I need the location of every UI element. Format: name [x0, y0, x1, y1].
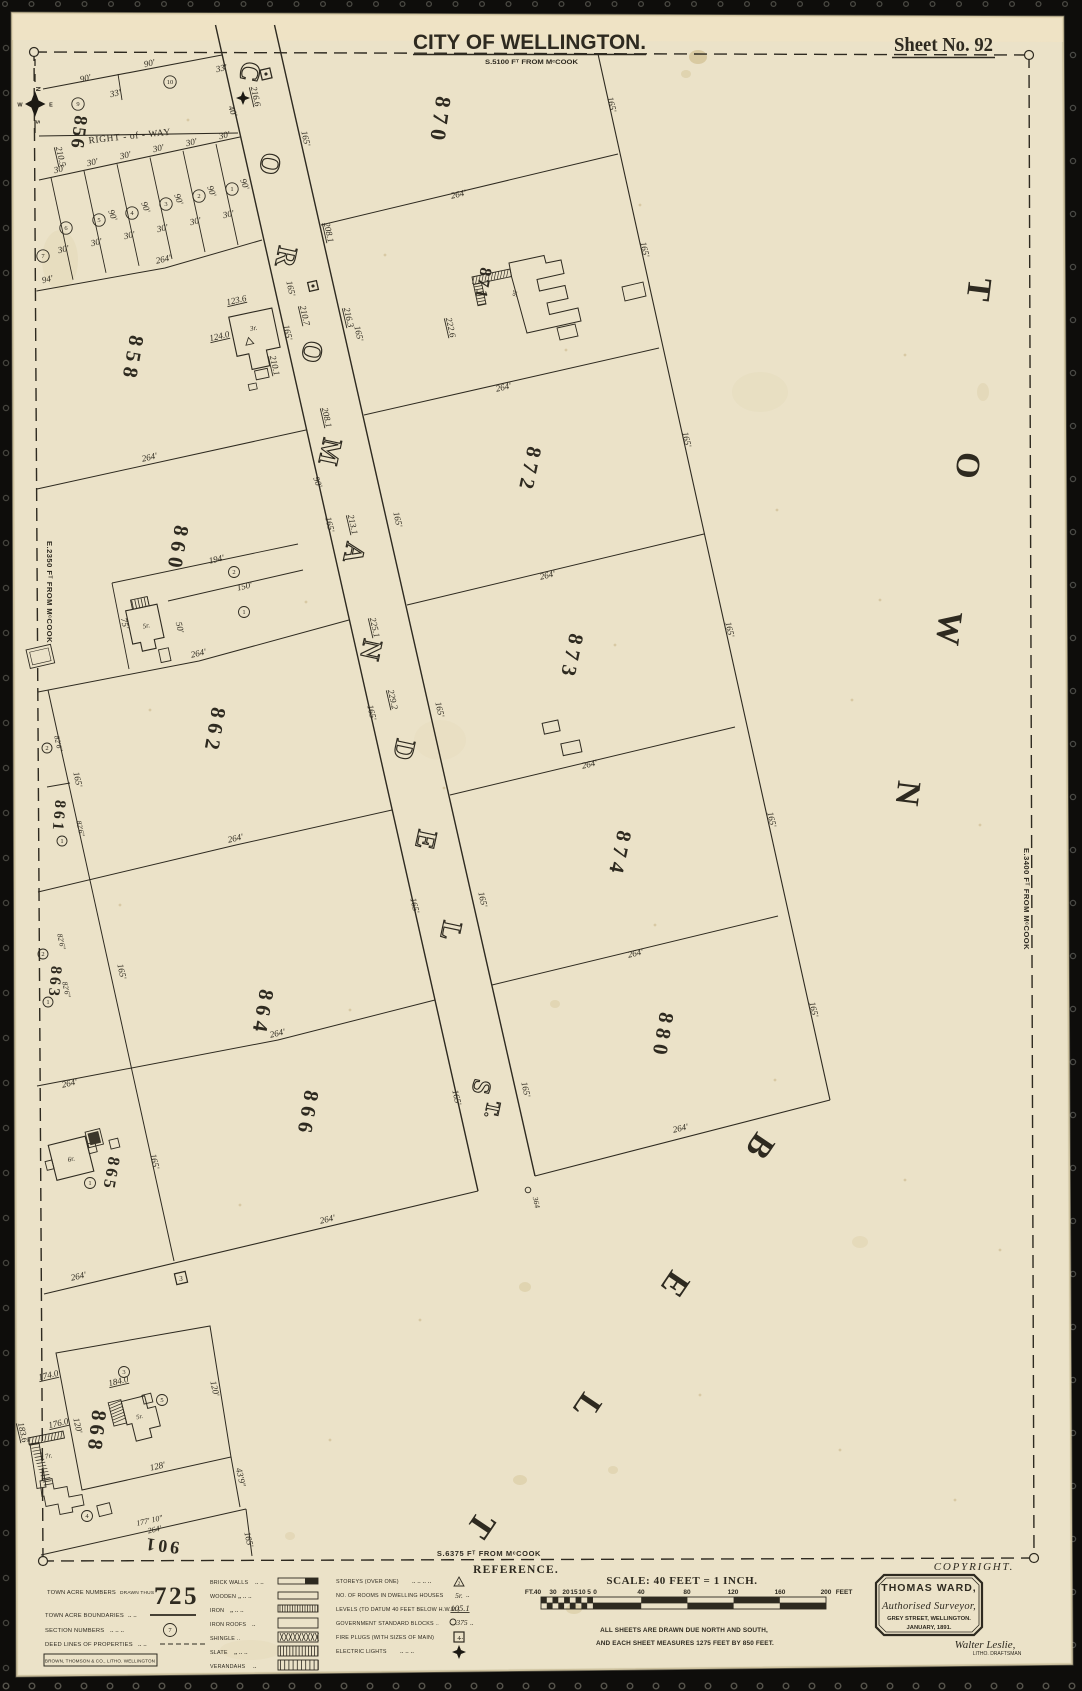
- svg-text:TOWN ACRE BOUNDARIES: TOWN ACRE BOUNDARIES: [45, 1613, 124, 1619]
- svg-text:..: ..: [466, 1591, 470, 1599]
- svg-text:5r.: 5r.: [455, 1591, 463, 1600]
- svg-text:ELECTRIC LIGHTS: ELECTRIC LIGHTS: [336, 1649, 387, 1655]
- svg-text:S.5100 Fᵀ FROM MᶜCOOK: S.5100 Fᵀ FROM MᶜCOOK: [485, 59, 579, 66]
- svg-text:T: T: [959, 276, 999, 303]
- svg-text:.. ..: .. ..: [255, 1578, 264, 1586]
- svg-text:W: W: [17, 103, 23, 109]
- svg-text:BRICK WALLS: BRICK WALLS: [210, 1580, 248, 1586]
- svg-text:Authorised Surveyor,: Authorised Surveyor,: [881, 1601, 976, 1612]
- svg-text:.. .. ..: .. .. ..: [400, 1647, 414, 1655]
- svg-text:.. .. ..: .. .. ..: [110, 1626, 124, 1634]
- svg-text:IRON ROOFS: IRON ROOFS: [210, 1622, 246, 1628]
- svg-text:E.2350 Fᵀ FROM MᶜCOOK: E.2350 Fᵀ FROM MᶜCOOK: [45, 541, 54, 643]
- svg-text:2: 2: [197, 193, 200, 200]
- svg-text:„ .. ..: „ .. ..: [230, 1606, 244, 1614]
- svg-text:O: O: [947, 450, 987, 481]
- svg-text:.. ..: .. ..: [128, 1611, 137, 1619]
- svg-text:„ .. ..: „ .. ..: [234, 1648, 248, 1656]
- svg-text:2: 2: [458, 1581, 461, 1587]
- svg-text:CITY OF WELLINGTON.: CITY OF WELLINGTON.: [413, 31, 646, 54]
- svg-text:..: ..: [253, 1662, 257, 1670]
- svg-text:2: 2: [41, 951, 44, 958]
- svg-text:200: 200: [821, 1589, 832, 1596]
- svg-text:15: 15: [570, 1589, 578, 1596]
- svg-text:.. .. ..: .. .. .. ..: [412, 1577, 432, 1585]
- svg-text:N: N: [888, 779, 928, 808]
- svg-text:856: 856: [66, 114, 91, 151]
- svg-text:1: 1: [230, 186, 233, 193]
- svg-text:TOWN ACRE NUMBERS: TOWN ACRE NUMBERS: [47, 1590, 116, 1596]
- svg-text:861: 861: [49, 799, 69, 833]
- svg-text:LEVELS (TO DATUM 40 FEET BELOW: LEVELS (TO DATUM 40 FEET BELOW H.W.M.): [336, 1607, 460, 1613]
- svg-text:..: ..: [252, 1620, 256, 1628]
- svg-text:1: 1: [242, 609, 245, 616]
- svg-text:80: 80: [683, 1589, 691, 1596]
- svg-text:40: 40: [637, 1589, 645, 1596]
- svg-text:10: 10: [578, 1589, 586, 1596]
- svg-text:3: 3: [164, 201, 167, 208]
- svg-text:SECTION NUMBERS: SECTION NUMBERS: [45, 1628, 104, 1634]
- svg-text:3: 3: [122, 1369, 125, 1376]
- svg-text:5: 5: [97, 217, 100, 224]
- svg-text:2: 2: [45, 745, 48, 752]
- svg-text:DEED LINES OF PROPERTIES: DEED LINES OF PROPERTIES: [45, 1642, 133, 1648]
- svg-text:..: ..: [470, 1619, 474, 1627]
- svg-text:9: 9: [76, 101, 79, 108]
- svg-text:3: 3: [179, 1275, 183, 1283]
- svg-text:FEET: FEET: [836, 1589, 853, 1596]
- svg-text:1: 1: [60, 838, 63, 845]
- svg-text:10: 10: [167, 79, 174, 86]
- svg-text:DRAWN THUS: DRAWN THUS: [120, 1590, 154, 1596]
- svg-text:E.3400 Fᵀ FROM MᶜCOOK: E.3400 Fᵀ FROM MᶜCOOK: [1022, 848, 1031, 950]
- svg-text:NO. OF ROOMS IN DWELLING HOUSE: NO. OF ROOMS IN DWELLING HOUSES: [336, 1593, 444, 1599]
- svg-text:375: 375: [455, 1618, 468, 1627]
- svg-text:JANUARY, 1891.: JANUARY, 1891.: [907, 1625, 952, 1631]
- svg-text:FIRE PLUGS (WITH SIZES OF MAIN: FIRE PLUGS (WITH SIZES OF MAIN): [336, 1635, 434, 1641]
- svg-text:SHINGLE ..: SHINGLE ..: [210, 1636, 240, 1642]
- svg-text:160: 160: [775, 1589, 786, 1596]
- svg-text:2: 2: [232, 569, 235, 576]
- svg-text:LITHO. DRAFTSMAN: LITHO. DRAFTSMAN: [973, 1651, 1022, 1657]
- svg-text:COPYRIGHT.: COPYRIGHT.: [934, 1561, 1014, 1573]
- svg-text:26: 26: [511, 290, 518, 297]
- svg-text:S.6375 Fᵀ FROM MᶜCOOK: S.6375 Fᵀ FROM MᶜCOOK: [437, 1549, 541, 1558]
- svg-text:STOREYS (OVER ONE): STOREYS (OVER ONE): [336, 1579, 399, 1585]
- svg-text:GREY STREET, WELLINGTON.: GREY STREET, WELLINGTON.: [887, 1616, 971, 1622]
- svg-text:W: W: [928, 609, 969, 647]
- svg-text:AND EACH SHEET MEASURES 1275 F: AND EACH SHEET MEASURES 1275 FEET BY 850…: [596, 1640, 774, 1647]
- svg-text:SLATE: SLATE: [210, 1650, 228, 1656]
- svg-text:Sheet No. 92: Sheet No. 92: [894, 34, 993, 56]
- svg-text:„ .. ..: „ .. ..: [238, 1592, 252, 1600]
- svg-text:FT.40: FT.40: [525, 1589, 542, 1596]
- svg-text:IRON: IRON: [210, 1608, 224, 1614]
- svg-text:S: S: [34, 120, 40, 124]
- svg-text:E: E: [49, 103, 53, 109]
- svg-text:120: 120: [728, 1589, 739, 1596]
- svg-text:1: 1: [46, 999, 49, 1006]
- svg-text:SCALE: 40 FEET = 1 INCH.: SCALE: 40 FEET = 1 INCH.: [606, 1575, 757, 1587]
- svg-text:BROWN, THOMSON & CO., LITHO. W: BROWN, THOMSON & CO., LITHO. WELLINGTON: [45, 1659, 155, 1664]
- svg-text:THOMAS WARD,: THOMAS WARD,: [881, 1582, 976, 1594]
- svg-text:30: 30: [549, 1589, 557, 1596]
- svg-text:725: 725: [154, 1583, 199, 1610]
- svg-text:5: 5: [160, 1397, 163, 1404]
- svg-text:105.1: 105.1: [450, 1603, 469, 1613]
- svg-text:.. ..: .. ..: [138, 1640, 147, 1648]
- svg-text:WOODEN: WOODEN: [210, 1594, 236, 1600]
- svg-text:0: 0: [593, 1589, 597, 1596]
- svg-text:GOVERNMENT STANDARD BLOCKS ..: GOVERNMENT STANDARD BLOCKS ..: [336, 1621, 439, 1627]
- svg-text:5: 5: [587, 1589, 591, 1596]
- svg-text:REFERENCE.: REFERENCE.: [473, 1564, 559, 1576]
- svg-text:20: 20: [562, 1589, 570, 1596]
- svg-text:ALL SHEETS ARE DRAWN DUE NORTH: ALL SHEETS ARE DRAWN DUE NORTH AND SOUTH…: [600, 1627, 768, 1634]
- svg-text:VERANDAHS: VERANDAHS: [210, 1664, 246, 1670]
- svg-text:Walter Leslie,: Walter Leslie,: [955, 1639, 1016, 1651]
- svg-text:1: 1: [88, 1180, 91, 1187]
- svg-text:N: N: [34, 87, 41, 92]
